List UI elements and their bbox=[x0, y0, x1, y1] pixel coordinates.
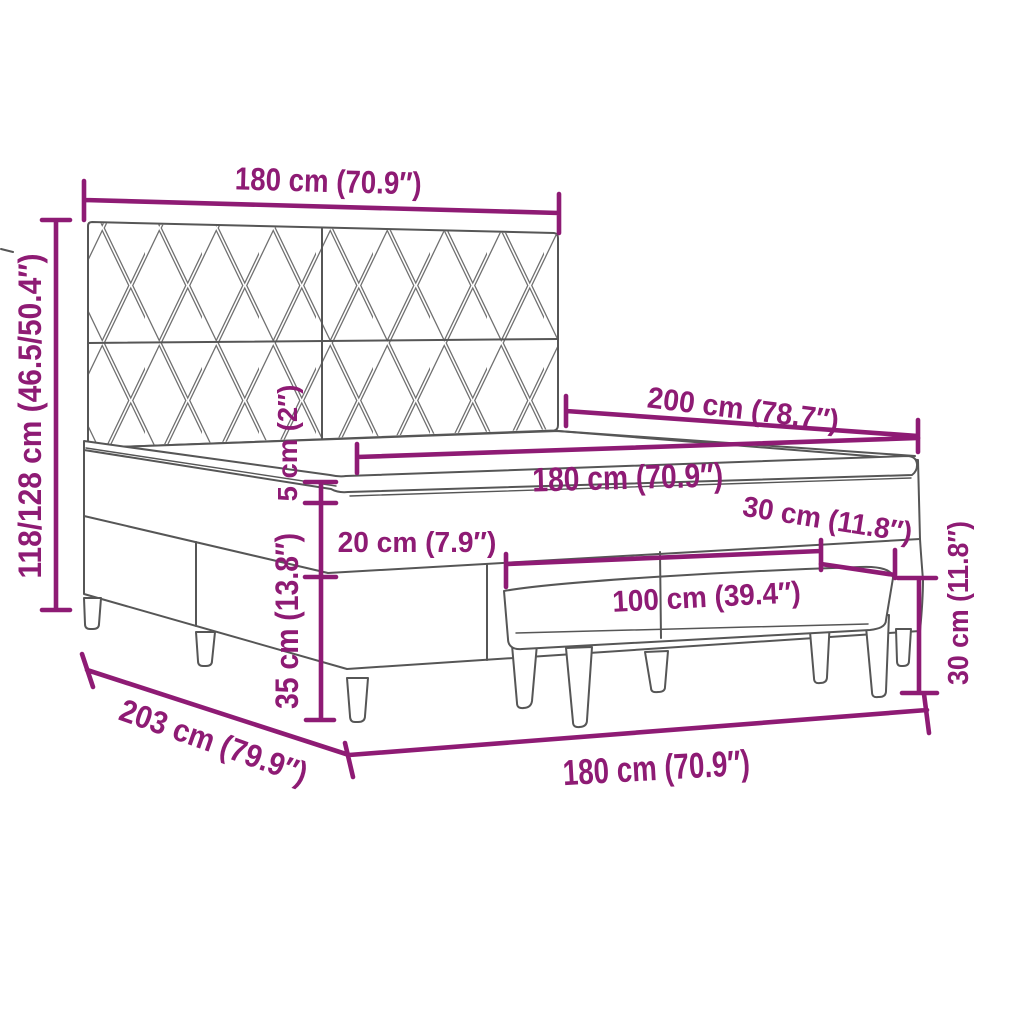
svg-text:180 cm (70.9″): 180 cm (70.9″) bbox=[234, 162, 422, 203]
svg-text:180 cm (70.9″): 180 cm (70.9″) bbox=[532, 456, 724, 499]
svg-text:30 cm (11.8″): 30 cm (11.8″) bbox=[942, 521, 974, 685]
svg-text:35 cm (13.8″): 35 cm (13.8″) bbox=[270, 533, 305, 709]
svg-text:118/128 cm (46.5/50.4″): 118/128 cm (46.5/50.4″) bbox=[12, 254, 48, 579]
svg-text:20 cm (7.9″): 20 cm (7.9″) bbox=[338, 527, 497, 559]
svg-text:5 cm (2″): 5 cm (2″) bbox=[272, 385, 303, 502]
